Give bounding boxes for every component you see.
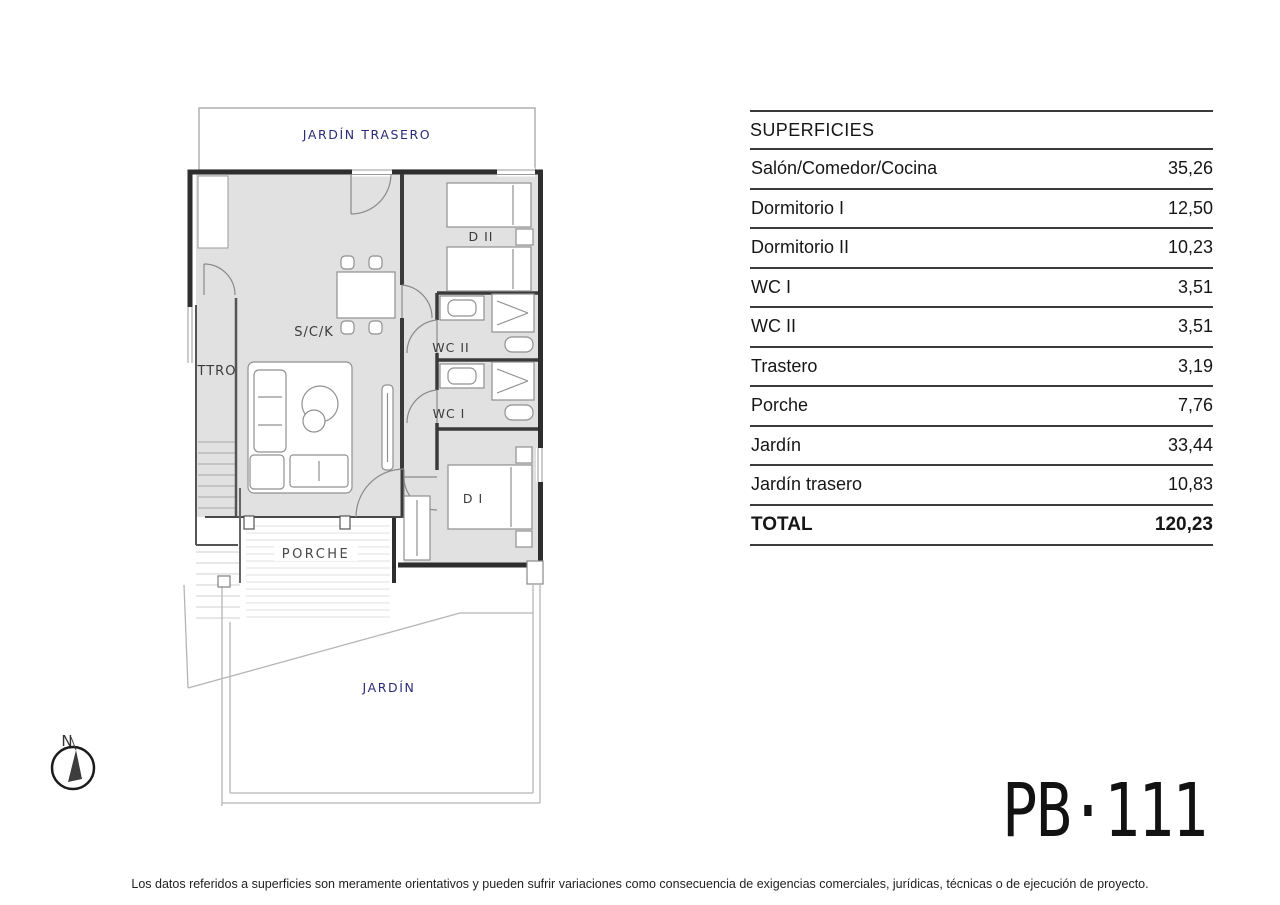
floor-plan: JARDÍN TRASERO [0,0,640,905]
surface-value: 3,51 [1178,277,1213,298]
surface-value: 33,44 [1168,435,1213,456]
table-row: Jardín 33,44 [750,427,1213,467]
nightstand [516,229,533,245]
table-row: Trastero 3,19 [750,348,1213,388]
surface-value: 3,51 [1178,316,1213,337]
porch-hatch [246,526,390,617]
corner-pillar [527,561,543,584]
surface-value: 10,23 [1168,237,1213,258]
surfaces-title: SUPERFICIES [750,110,1213,150]
table-row: WC I 3,51 [750,269,1213,309]
disclaimer-text: Los datos referidos a superficies son me… [0,877,1280,891]
surface-label: Jardín [750,435,801,456]
bedroom1-label: D I [463,491,483,506]
surface-value: 10,83 [1168,474,1213,495]
compass: N [52,732,94,789]
wc2-label: WC II [432,340,469,355]
surface-label: Dormitorio II [750,237,849,258]
page: JARDÍN TRASERO [0,0,1280,905]
storage-label: TTRO [197,364,237,379]
bed-single-1 [447,183,531,227]
plan-code: PB·111 [1002,774,1206,848]
porch-label: PORCHE [282,547,351,562]
living-label: S/C/K [294,325,334,340]
table-row: Dormitorio II 10,23 [750,229,1213,269]
table-row: Porche 7,76 [750,387,1213,427]
toilet-wc1 [505,405,533,420]
toilet-wc2 [505,337,533,352]
surface-label: Dormitorio I [750,198,844,219]
compass-needle [68,750,82,782]
table-row: Dormitorio I 12,50 [750,190,1213,230]
garden-label: JARDÍN [362,680,416,695]
table-row: Salón/Comedor/Cocina 35,26 [750,150,1213,190]
bed-single-2 [447,247,531,291]
surface-value: 7,76 [1178,395,1213,416]
surfaces-table: SUPERFICIES Salón/Comedor/Cocina 35,26 D… [750,110,1213,546]
surface-value: 35,26 [1168,158,1213,179]
total-label: TOTAL [750,514,813,536]
surface-label: Salón/Comedor/Cocina [750,158,937,179]
sofa-chaise [254,370,286,452]
dining-table [337,272,395,318]
surface-label: Porche [750,395,808,416]
bedroom2-label: D II [469,229,494,244]
table-total-row: TOTAL 120,23 [750,506,1213,546]
surface-value: 3,19 [1178,356,1213,377]
plot-diagonal [188,613,460,688]
back-garden-label: JARDÍN TRASERO [302,127,431,142]
bed-double [448,465,532,529]
wc1-label: WC I [433,406,466,421]
surface-value: 12,50 [1168,198,1213,219]
surface-label: Trastero [750,356,817,377]
surface-label: Jardín trasero [750,474,862,495]
back-garden: JARDÍN TRASERO [199,108,535,170]
table-row: WC II 3,51 [750,308,1213,348]
surface-label: WC II [750,316,796,337]
surface-label: WC I [750,277,791,298]
table-row: Jardín trasero 10,83 [750,466,1213,506]
compass-north-label: N [61,732,72,750]
total-value: 120,23 [1155,514,1213,536]
